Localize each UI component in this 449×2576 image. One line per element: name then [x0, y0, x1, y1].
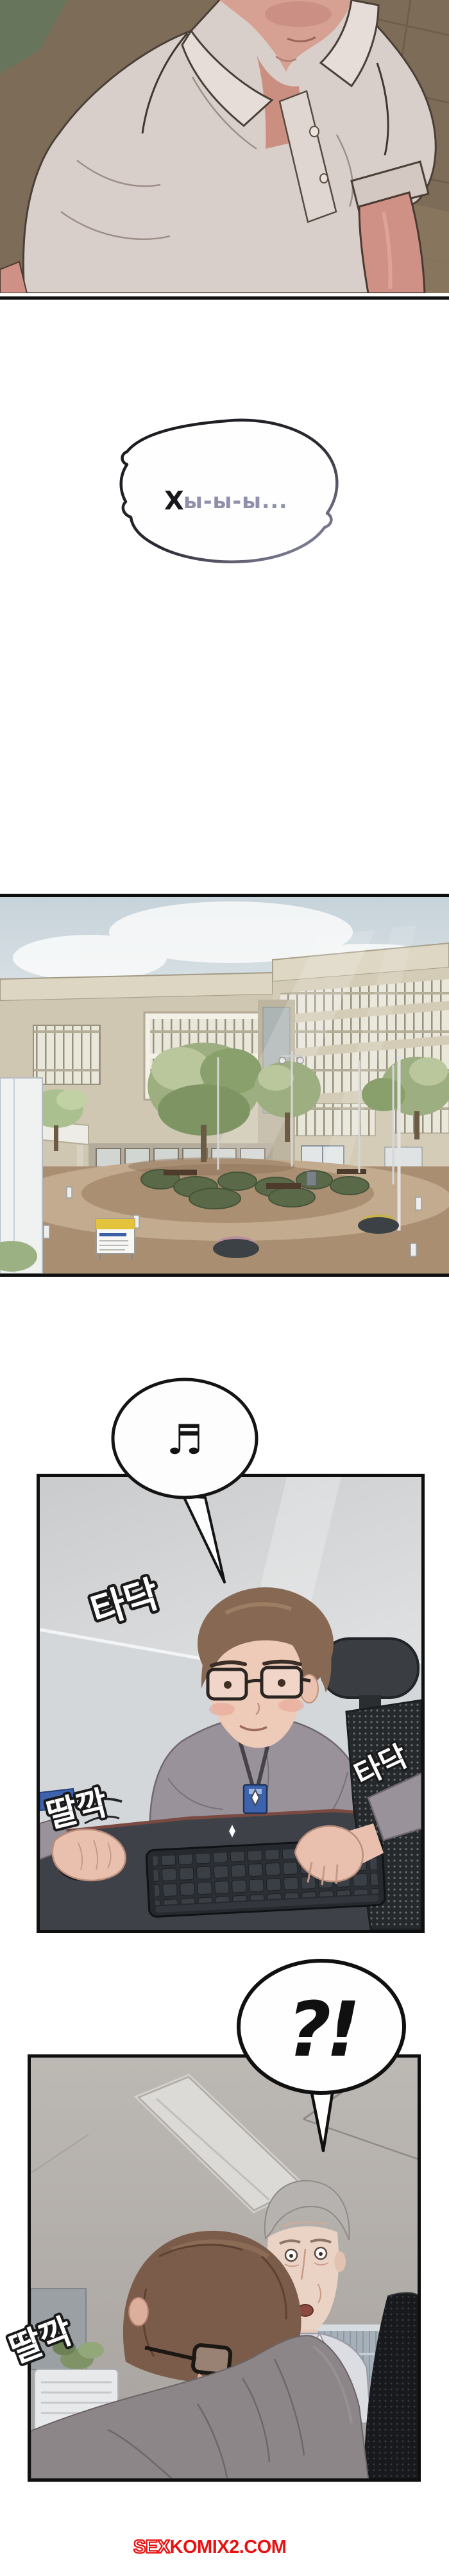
sfx-typing-right: 타닥: [345, 1708, 449, 1804]
chair-headrest: [321, 1639, 418, 1698]
information-sign: [96, 1219, 135, 1259]
shirt-button: [310, 126, 319, 137]
speech-bubble-sigh: Х ы-ы-ы...: [101, 414, 345, 572]
blush-left: [209, 1703, 235, 1716]
ear-right: [334, 2251, 346, 2272]
comic-page: { "colors": { "page_bg": "#ffffff", "pan…: [0, 0, 449, 2576]
panel1-art: [0, 0, 449, 293]
bubble-tail: [183, 1496, 224, 1582]
flower-planter-1: [213, 1236, 259, 1258]
sigh-text-rest: ы-ы-ы...: [183, 488, 288, 513]
watermark-solid-text: KOMIX2.COM: [170, 2537, 287, 2557]
sfx-click-panel4: 딸깍: [1, 2282, 123, 2384]
music-note-icon: ♬: [166, 1417, 203, 1464]
blush: [265, 1, 332, 27]
ear: [129, 2298, 148, 2326]
shirt-button-2: [320, 174, 328, 183]
sfx-click-left: 딸깍: [38, 1761, 160, 1851]
sfx-text: 딸깍: [4, 2310, 78, 2371]
speech-bubble-music: ♬: [108, 1370, 262, 1592]
sfx-text: 타닥: [349, 1738, 413, 1793]
panel-closeup-torso: [0, 0, 449, 300]
surprise-text: ?!: [287, 1985, 355, 2074]
panel-building-exterior: [0, 894, 449, 1277]
blush-right: [278, 1699, 304, 1712]
panel2-art: [0, 897, 449, 1274]
window-grid-left: [33, 1025, 100, 1084]
sfx-text: 딸깍: [42, 1784, 111, 1836]
site-watermark: SEXKOMIX2.COM: [133, 2537, 286, 2558]
speech-bubble-surprise: ?!: [230, 1958, 422, 2157]
sigh-text-initial: Х: [164, 486, 184, 516]
watermark-outlined-text: SEX: [133, 2537, 170, 2557]
bubble-tail: [310, 2085, 334, 2151]
trash-bin: [307, 1172, 316, 1186]
